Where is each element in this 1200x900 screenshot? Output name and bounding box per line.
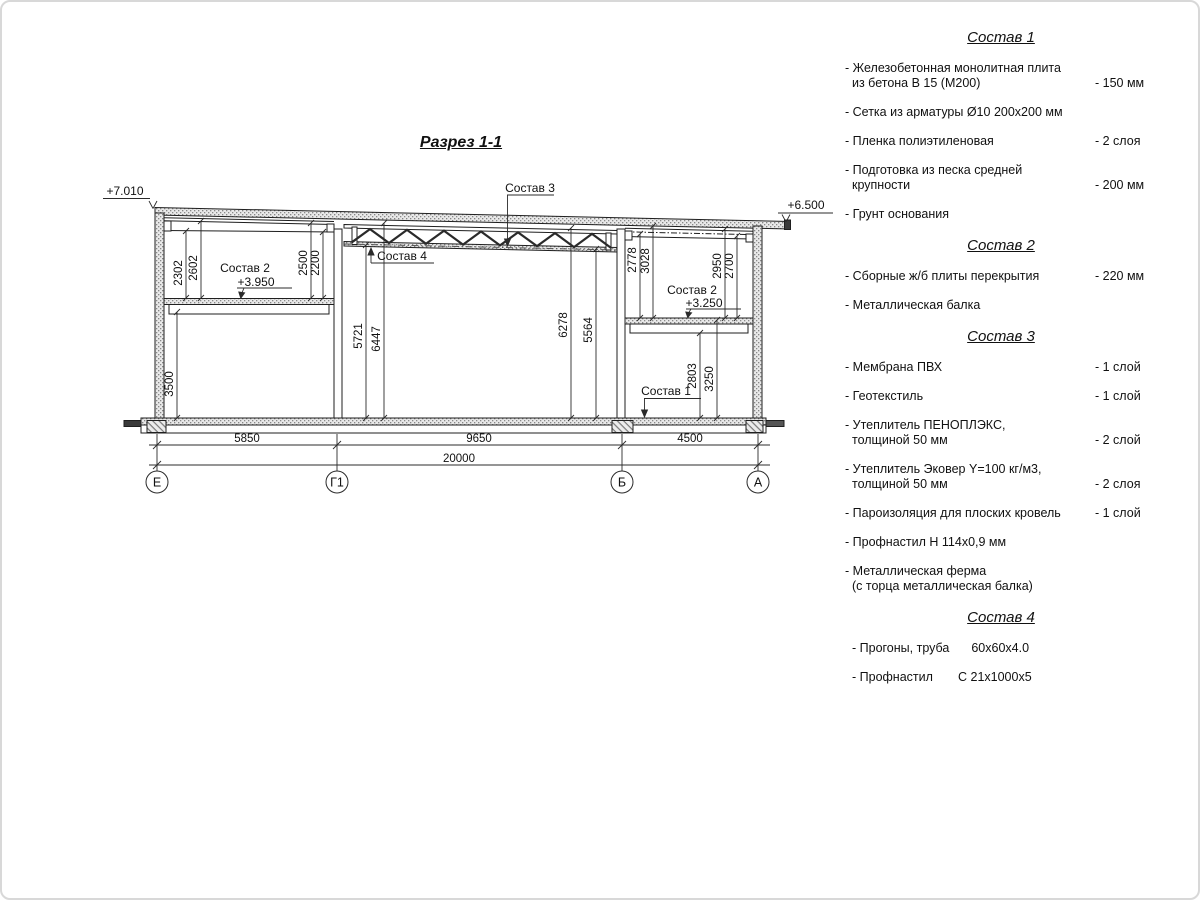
dim-text: 6447 — [371, 326, 383, 352]
sheet: Разрез 1-1 — [0, 0, 1200, 900]
legend-item: - Профнастил Н 114х0,9 мм — [845, 535, 1157, 550]
dim-text: 2778 — [627, 247, 639, 273]
legend-item-spec: С 21х1000х5 — [958, 670, 1032, 684]
callout: Состав 1 — [641, 384, 691, 398]
legend-item: - Сборные ж/б плиты перекрытия - 220 мм — [845, 269, 1157, 284]
legend-section-title: Состав 3 — [845, 328, 1157, 346]
legend-item: - ПрофнастилС 21х1000х5 — [845, 670, 1157, 685]
legend-item-value: - 2 слоя — [1095, 477, 1157, 492]
dim-text: 2950 — [712, 253, 724, 279]
dim-text: 2302 — [173, 260, 185, 286]
dim-text: 3250 — [704, 366, 716, 392]
legend-item-value: - 220 мм — [1095, 269, 1157, 284]
right-room-ceiling — [625, 228, 753, 242]
legend-section-title: Состав 2 — [845, 237, 1157, 255]
legend-item: - Утеплитель Эковер Y=100 кг/м3,толщиной… — [845, 462, 1157, 492]
dim-text: 3500 — [164, 371, 176, 397]
dim-text: 5564 — [583, 317, 595, 343]
dim-text: 4500 — [677, 433, 703, 445]
legend-item: - Металлическая балка — [845, 298, 1157, 313]
dim-text: 20000 — [443, 453, 475, 465]
axis-label: Г1 — [330, 476, 344, 490]
building-section — [124, 208, 791, 434]
materials-legend: Состав 1 - Железобетонная монолитная пли… — [845, 14, 1157, 685]
legend-item-value: - 1 слой — [1095, 360, 1157, 375]
wall-left — [155, 213, 164, 421]
section-drawing: 2302 2602 2500 2200 3500 5721 6447 6278 … — [85, 128, 845, 518]
axis-labels: Е Г1 Б А — [153, 476, 763, 490]
axis-bubbles — [146, 471, 769, 493]
callout: Состав 3 — [505, 181, 555, 195]
footing-b — [612, 421, 633, 433]
footing-a — [746, 421, 763, 433]
legend-item: - Прогоны, труба60х60х4.0 — [845, 641, 1157, 656]
dim-text: 5721 — [353, 323, 365, 349]
legend-item: - Грунт основания — [845, 207, 1157, 222]
level-mark: +6.500 — [787, 198, 824, 212]
dim-text: 6278 — [558, 312, 570, 338]
column-g1 — [334, 229, 342, 421]
dim-text: 5850 — [234, 433, 260, 445]
ground-floor-slab — [124, 418, 784, 433]
legend-item: - Железобетонная монолитная плитаиз бето… — [845, 61, 1157, 91]
legend-item: - Пленка полиэтиленовая - 2 слоя — [845, 134, 1157, 149]
horizontal-dimension-texts: 5850 9650 4500 20000 — [234, 433, 703, 465]
legend-item-value: - 2 слой — [1095, 433, 1157, 448]
legend-item: - Сетка из арматуры Ø10 200х200 мм — [845, 105, 1157, 120]
roof-slab — [155, 208, 791, 230]
legend-item: - Металлическая ферма(с торца металличес… — [845, 564, 1157, 594]
axis-label: Б — [618, 476, 626, 490]
roof-truss — [344, 225, 617, 253]
dim-3500 — [174, 309, 180, 421]
dim-text: 3028 — [640, 248, 652, 274]
legend-item: - Утеплитель ПЕНОПЛЭКС,толщиной 50 мм - … — [845, 418, 1157, 448]
callout: Состав 2 — [220, 261, 270, 275]
callout: Состав 2 — [667, 283, 717, 297]
column-b — [617, 229, 625, 421]
footing-e — [147, 421, 166, 433]
legend-item-value: - 1 слой — [1095, 506, 1157, 521]
dim-2778 — [637, 231, 643, 321]
legend-section-title: Состав 1 — [845, 29, 1157, 47]
legend-item-value: - 150 мм — [1095, 76, 1157, 91]
axis-label: А — [754, 476, 763, 490]
dim-text: 2602 — [188, 255, 200, 281]
slab-right — [625, 318, 753, 333]
level-mark: +3.950 — [237, 275, 274, 289]
legend-item: - Подготовка из песка среднейкрупности -… — [845, 163, 1157, 193]
dim-text: 2200 — [310, 250, 322, 276]
legend-item-value: - 200 мм — [1095, 178, 1157, 193]
axis-label: Е — [153, 476, 161, 490]
dim-text: 2500 — [298, 250, 310, 276]
legend-item: - Пароизоляция для плоских кровель - 1 с… — [845, 506, 1157, 521]
dim-text: 9650 — [466, 433, 492, 445]
legend-item: - Мембрана ПВХ - 1 слой — [845, 360, 1157, 375]
legend-section-title: Состав 4 — [845, 609, 1157, 627]
legend-item-value: - 2 слоя — [1095, 134, 1157, 149]
legend-item-spec: 60х60х4.0 — [971, 641, 1029, 655]
callout: Состав 4 — [377, 249, 427, 263]
level-mark: +3.250 — [685, 296, 722, 310]
wall-right — [753, 226, 762, 421]
level-mark: +7.010 — [106, 184, 143, 198]
legend-item-value: - 1 слой — [1095, 389, 1157, 404]
legend-item: - Геотекстиль - 1 слой — [845, 389, 1157, 404]
dim-text: 2700 — [724, 253, 736, 279]
